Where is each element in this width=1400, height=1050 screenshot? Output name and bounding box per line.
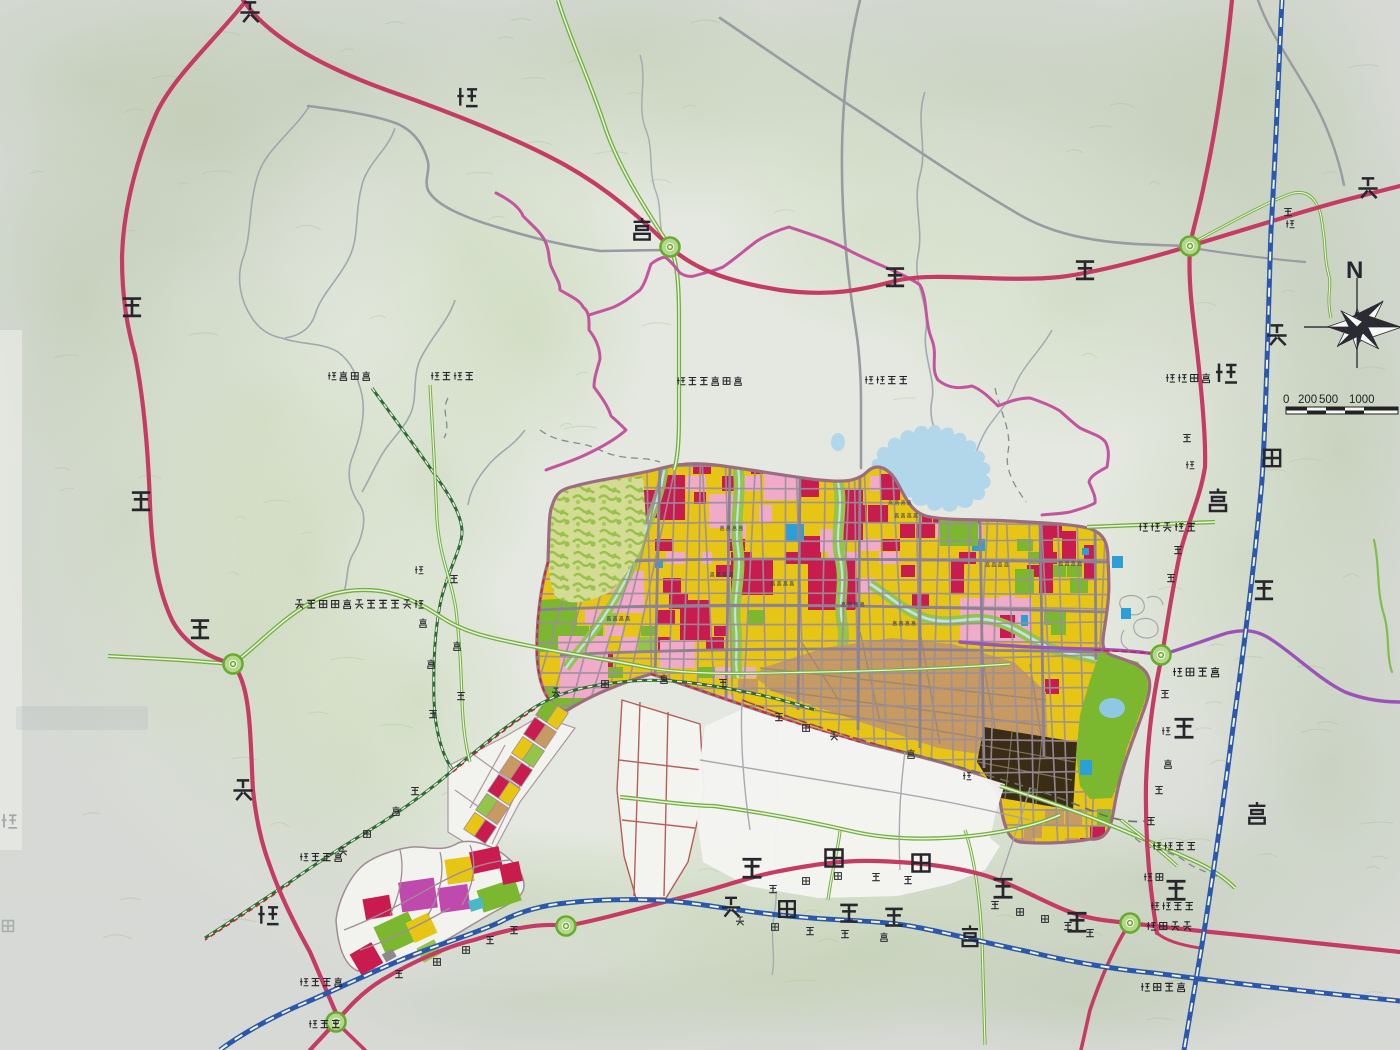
svg-text:0: 0 [1283,394,1289,406]
svg-text:N: N [1346,257,1363,284]
svg-text:200: 200 [1298,394,1317,406]
svg-text:500: 500 [1319,394,1338,406]
svg-text:1000: 1000 [1349,394,1375,406]
